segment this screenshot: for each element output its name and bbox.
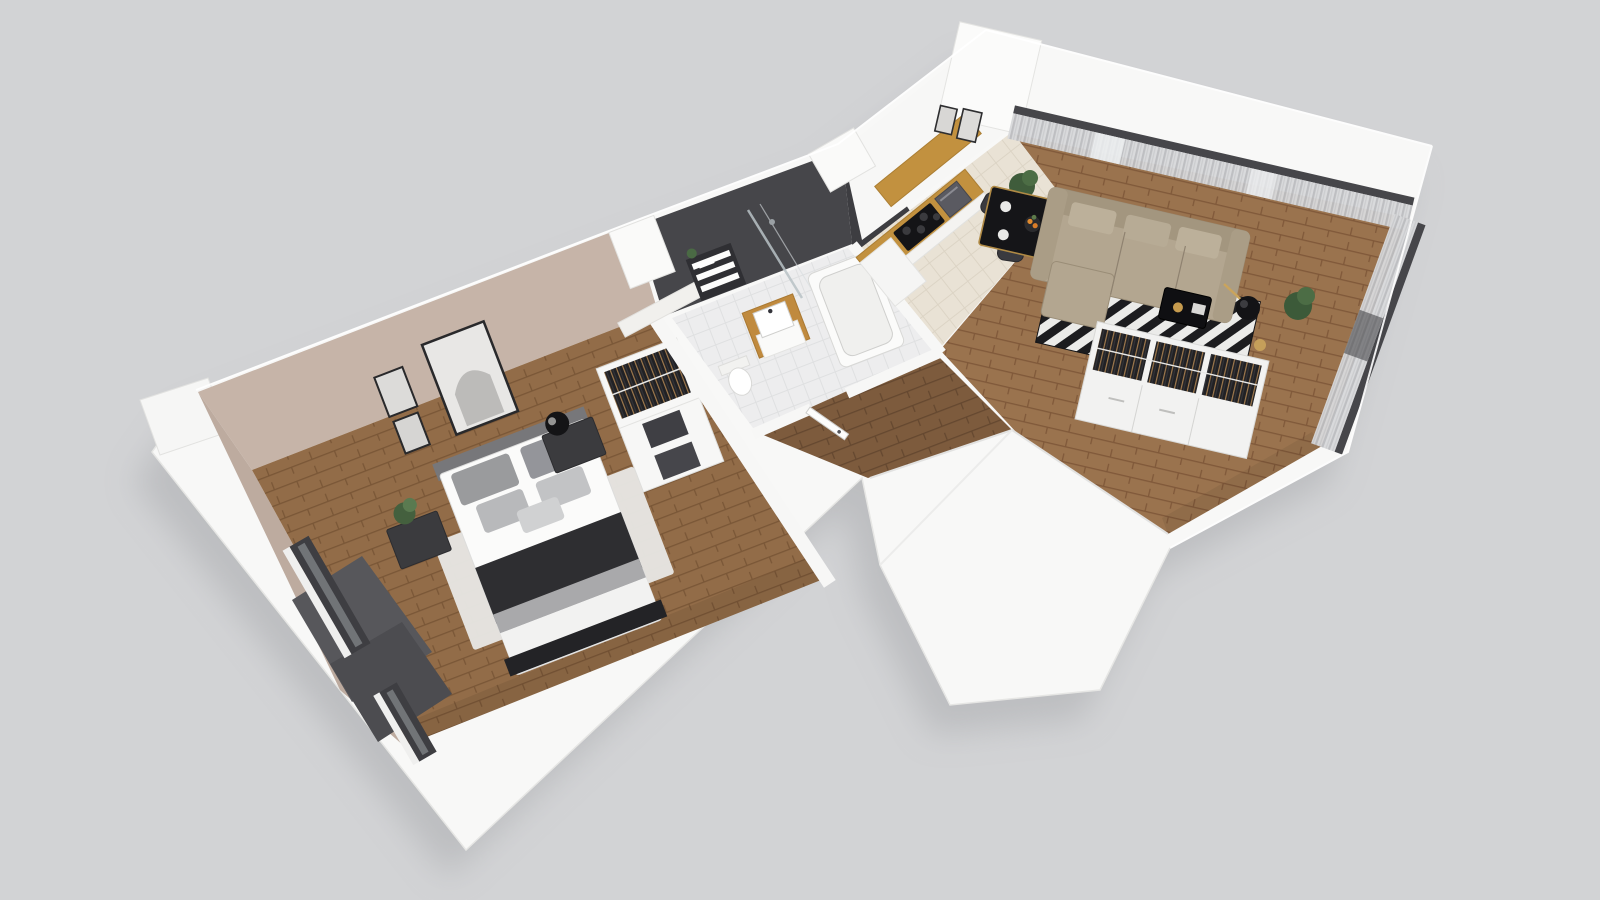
lamp-base: [1254, 339, 1266, 351]
floorplan-stage: [0, 0, 1600, 900]
shower-head: [769, 219, 775, 225]
floorplan-render: [0, 0, 1600, 900]
